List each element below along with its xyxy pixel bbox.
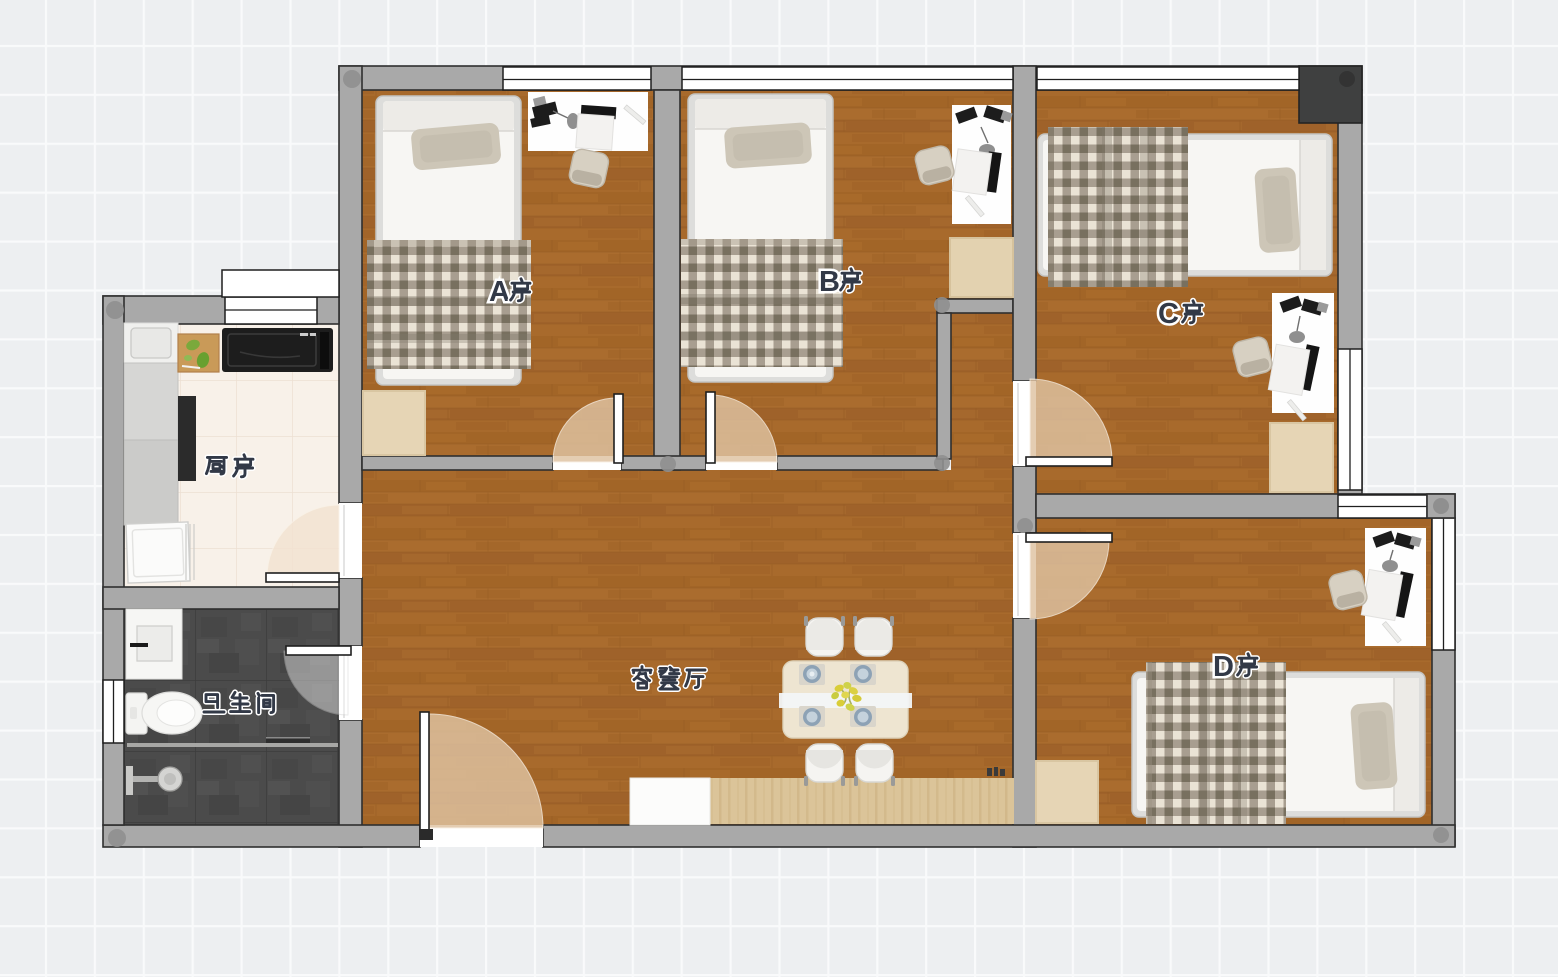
- svg-text:B: B: [819, 266, 840, 298]
- svg-text:C: C: [1158, 298, 1179, 330]
- svg-text:D: D: [1213, 651, 1234, 683]
- svg-text:A: A: [489, 276, 510, 308]
